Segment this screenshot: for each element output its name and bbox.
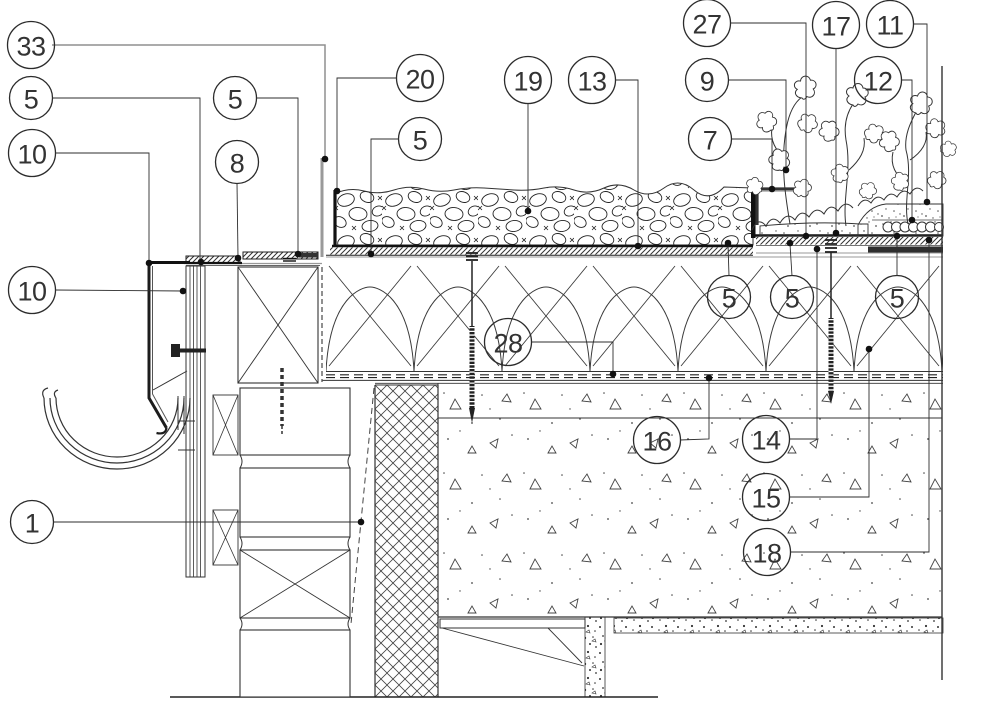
callout-number: 28 <box>493 329 522 359</box>
leader-dot <box>725 240 732 247</box>
plant-twig <box>910 132 926 160</box>
leader-dot <box>769 186 776 193</box>
leader-dot <box>866 346 873 353</box>
leader-dot <box>833 230 840 237</box>
callout-10-2: 10 <box>9 130 153 267</box>
callout-number: 13 <box>577 67 606 97</box>
leader-dot <box>635 243 642 250</box>
leader-line <box>237 183 238 257</box>
fascia-planking <box>186 266 205 577</box>
leader-dot <box>909 217 916 224</box>
callout-number: 27 <box>692 10 721 40</box>
callout-number: 8 <box>230 149 245 179</box>
callout-33-0: 33 <box>8 22 329 163</box>
leader-dot <box>358 519 365 526</box>
callout-5-1: 5 <box>10 77 205 266</box>
callout-number: 9 <box>700 67 715 97</box>
interior-wall-finish-strip <box>585 617 605 697</box>
spacer-timber-upper <box>213 395 238 455</box>
fascia-drip-edge <box>149 261 187 433</box>
insulation-layer <box>326 257 943 372</box>
gravel-ballast-layer <box>334 183 753 245</box>
leader-dot <box>198 259 205 266</box>
drainage-layer <box>883 222 944 232</box>
ceiling-finish-band <box>614 618 943 633</box>
callout-number: 17 <box>821 12 850 42</box>
gutter <box>43 388 195 469</box>
callout-number: 5 <box>890 284 905 314</box>
leader-dot <box>803 233 810 240</box>
leader-line <box>55 290 183 291</box>
leader-line <box>52 45 325 159</box>
leader-dot <box>322 156 329 163</box>
leader-dot <box>368 251 375 258</box>
callout-number: 12 <box>863 67 892 97</box>
leader-line <box>55 153 149 262</box>
leader-dot <box>610 371 617 378</box>
callout-number: 10 <box>17 277 46 307</box>
cavity-dashed-line <box>351 388 374 624</box>
leader-dot <box>926 237 933 244</box>
callout-number: 10 <box>17 140 46 170</box>
callout-8-6: 8 <box>216 141 259 262</box>
callout-10-3: 10 <box>9 267 187 314</box>
window-head-frame <box>440 619 585 666</box>
protection-mat <box>868 247 943 253</box>
callout-number: 16 <box>642 427 671 457</box>
detail-drawing-canvas: 3351010158205191328279717111255516141518 <box>0 0 1000 720</box>
leader-dot <box>787 240 794 247</box>
spacer-timber-lower <box>213 510 238 565</box>
callout-number: 20 <box>405 65 434 95</box>
callout-number: 18 <box>752 539 781 569</box>
rim-timber <box>238 267 318 383</box>
leader-dot <box>525 208 532 215</box>
leader-line <box>256 98 298 253</box>
callout-number: 5 <box>24 85 39 115</box>
callout-20-7: 20 <box>334 55 444 195</box>
plant-stem <box>845 104 853 226</box>
leader-dot <box>295 251 302 258</box>
vapour-barrier-dashed <box>326 375 943 378</box>
leader-line <box>52 98 200 261</box>
roof-edge-section-drawing: 3351010158205191328279717111255516141518 <box>0 0 1000 720</box>
callout-number: 5 <box>722 284 737 314</box>
leader-dot <box>894 233 901 240</box>
plant-twig <box>849 138 864 170</box>
callout-number: 5 <box>228 85 243 115</box>
leader-dot <box>146 260 153 267</box>
callout-number: 15 <box>751 484 780 514</box>
substrate-band <box>760 223 868 236</box>
leader-dot <box>334 188 341 195</box>
leader-dot <box>814 246 821 253</box>
callout-number: 19 <box>513 67 542 97</box>
callout-number: 1 <box>25 509 40 539</box>
leader-line <box>337 78 397 190</box>
callout-number: 33 <box>16 32 45 62</box>
callout-number: 7 <box>703 126 718 156</box>
callout-number: 5 <box>785 284 800 314</box>
callout-number: 14 <box>751 426 781 456</box>
callout-number: 11 <box>876 11 903 41</box>
leader-dot <box>924 199 931 206</box>
masonry-wall <box>375 385 438 697</box>
green-roof-layers <box>755 204 944 253</box>
leader-dot <box>180 288 187 295</box>
callout-number: 5 <box>413 126 428 156</box>
timber-column <box>240 388 350 697</box>
leader-dot <box>783 167 790 174</box>
callout-17-15: 17 <box>813 2 860 237</box>
leader-dot <box>235 255 242 262</box>
leader-dot <box>706 375 713 382</box>
